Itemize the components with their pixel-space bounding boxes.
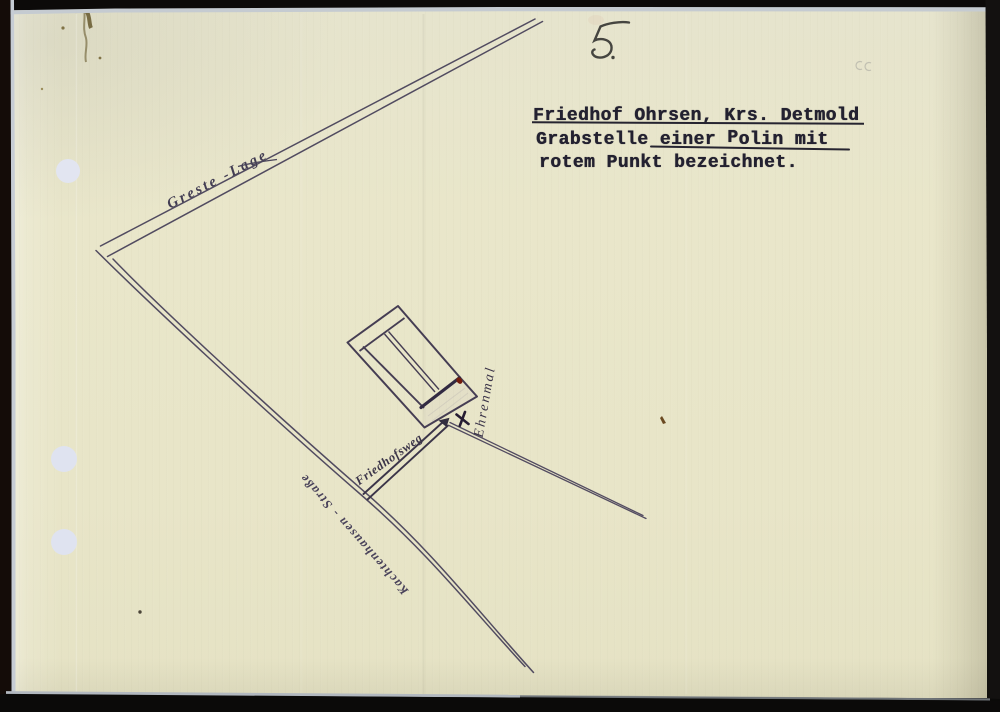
svg-text:Ehrenmal: Ehrenmal — [471, 365, 498, 440]
svg-text:Kachtenhausen - Straße: Kachtenhausen - Straße — [297, 471, 412, 599]
svg-text:Greste -Lage: Greste -Lage — [164, 147, 271, 213]
